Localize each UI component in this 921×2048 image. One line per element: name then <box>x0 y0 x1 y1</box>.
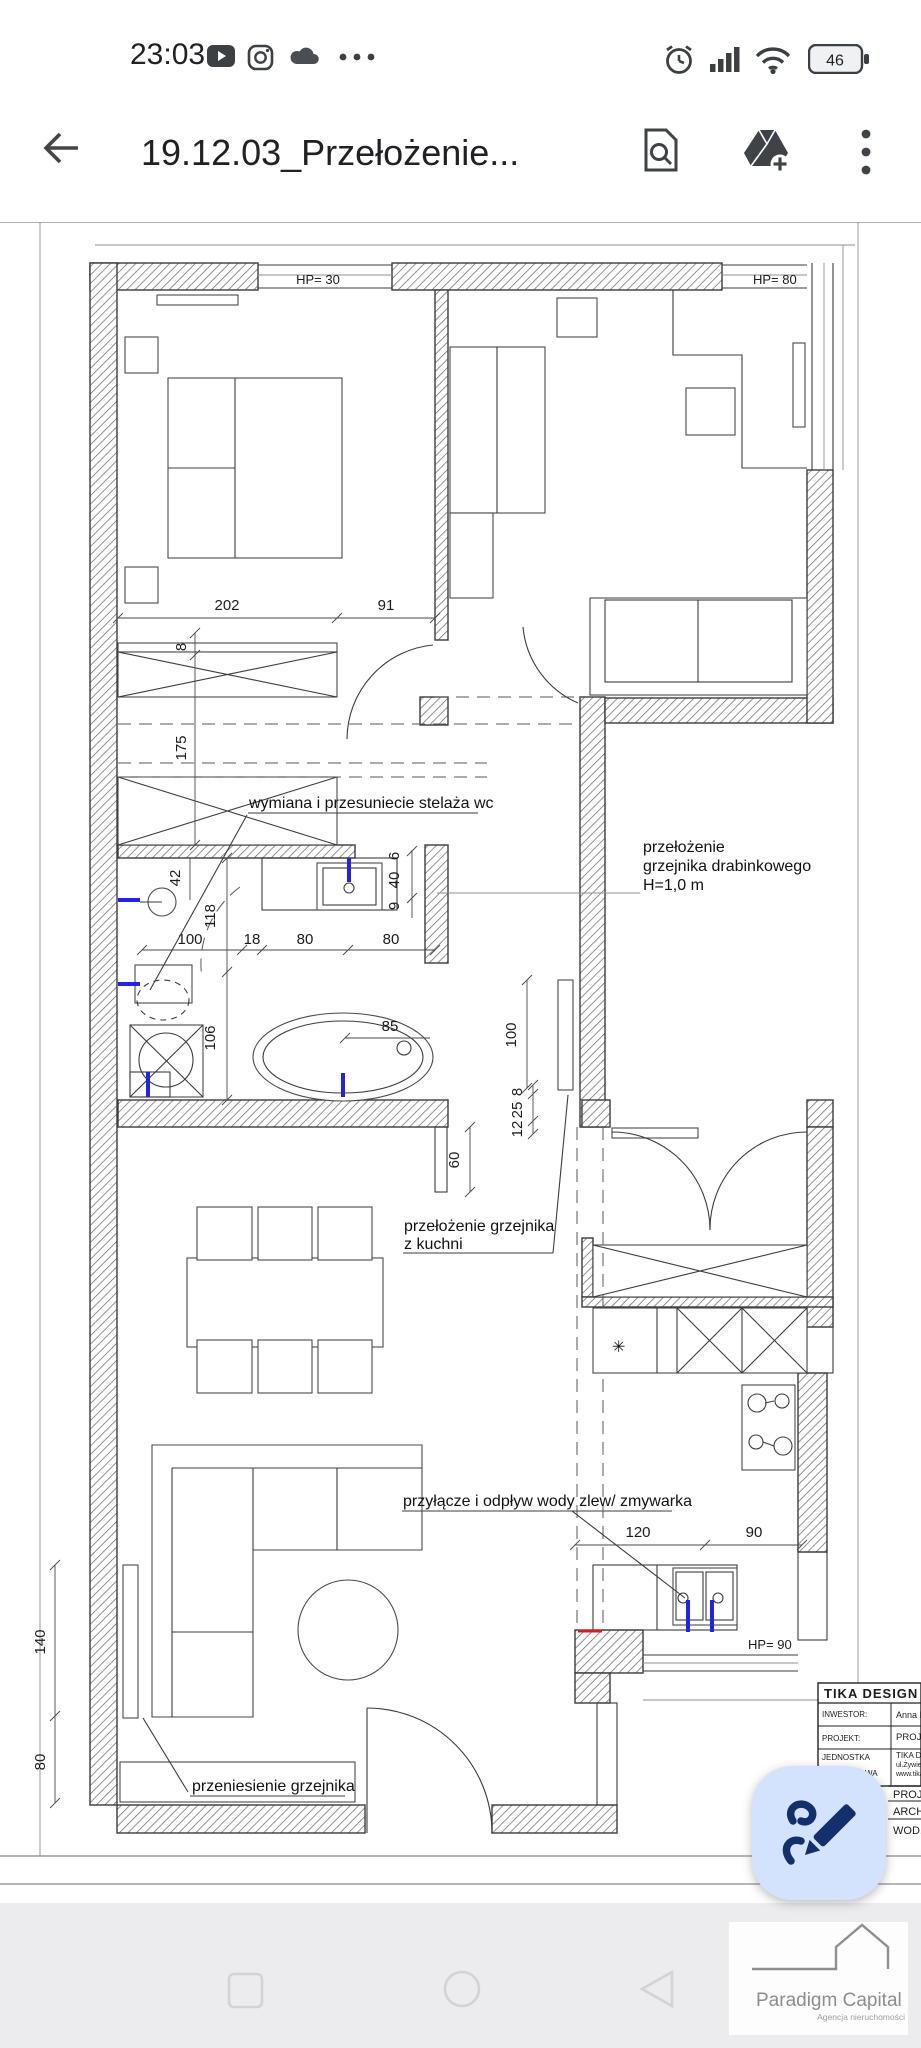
signal-icon <box>708 44 744 74</box>
wifi-icon <box>753 44 793 74</box>
svg-text:grzejnika drabinkowego: grzejnika drabinkowego <box>643 858 811 875</box>
kitchen: ✳ <box>578 1308 807 1632</box>
status-bar: 23:03 46 <box>0 0 921 90</box>
svg-text:H=1,0 m: H=1,0 m <box>643 877 704 894</box>
recent-apps-button[interactable] <box>226 1971 266 2011</box>
svg-text:PROJE: PROJE <box>893 1789 921 1801</box>
page-title: 19.12.03_Przełożenie... <box>141 132 519 174</box>
svg-text:106: 106 <box>202 1025 219 1050</box>
svg-text:8: 8 <box>509 1088 526 1096</box>
hall-wardrobe <box>593 1245 807 1297</box>
window-right <box>812 263 833 470</box>
corner-sofa <box>152 1445 422 1717</box>
window-hp30: HP= 30 <box>258 265 392 288</box>
search-in-document-button[interactable] <box>638 126 684 174</box>
svg-text:85: 85 <box>382 1018 399 1035</box>
kitchen-sink <box>578 1565 737 1632</box>
battery-level-text: 46 <box>826 53 844 70</box>
svg-text:ul.Żywiec: ul.Żywiec <box>896 1760 921 1769</box>
window-hp80: HP= 80 <box>722 265 807 288</box>
svg-text:www.tika: www.tika <box>895 1771 921 1778</box>
floor-plan: .wall{fill:url(#h);stroke:#3c3c3c;stroke… <box>0 0 921 2048</box>
annotation-living-radiator: przeniesienie grzejnika <box>192 1778 355 1795</box>
svg-text:120: 120 <box>625 1524 650 1541</box>
svg-text:80: 80 <box>297 931 314 948</box>
svg-text:18: 18 <box>244 931 261 948</box>
annotation-towel-radiator: przełożenie <box>643 839 725 856</box>
instagram-icon <box>247 44 274 71</box>
svg-text:90: 90 <box>746 1524 763 1541</box>
washing-machine <box>130 1025 203 1097</box>
watermark-subtitle: Agencja nieruchomości <box>817 2012 905 2022</box>
asterisk-symbol: ✳ <box>612 1339 625 1356</box>
watermark-logo: Paradigm Capital Agencja nieruchomości <box>729 1922 908 2035</box>
svg-text:PROJEKT:: PROJEKT: <box>822 1734 860 1743</box>
radiator-corridor <box>558 980 573 1090</box>
svg-text:175: 175 <box>173 735 190 760</box>
window-hp90: HP= 90 <box>643 1637 843 1700</box>
svg-text:INWESTOR:: INWESTOR: <box>822 1710 867 1719</box>
svg-text:z kuchni: z kuchni <box>404 1236 463 1253</box>
svg-text:TIKA DE: TIKA DE <box>896 1751 921 1760</box>
coffee-table <box>298 1580 398 1680</box>
annotation-sink: przyłącze i odpływ wody zlew/ zmywarka <box>403 1493 692 1510</box>
dining-table <box>187 1207 383 1393</box>
more-notifications-icon <box>338 52 378 62</box>
annotation-wc: wymiana i przesuniecie stelaża wc <box>248 795 494 812</box>
svg-text:HP= 90: HP= 90 <box>748 1637 792 1652</box>
bedroom-closet <box>118 643 337 845</box>
scribble-pen-icon <box>769 1783 869 1883</box>
svg-text:100: 100 <box>503 1022 520 1047</box>
youtube-icon <box>206 44 236 68</box>
svg-text:ARCH: ARCH <box>893 1806 921 1818</box>
stove <box>742 1385 795 1470</box>
battery-icon: 46 <box>808 44 872 74</box>
svg-text:40: 40 <box>386 872 403 889</box>
svg-text:TIKA DESIGN: TIKA DESIGN <box>824 1686 918 1701</box>
home-button[interactable] <box>442 1969 482 2009</box>
svg-text:140: 140 <box>32 1629 49 1654</box>
svg-text:Anna Ka: Anna Ka <box>896 1710 921 1720</box>
alarm-icon <box>662 44 696 76</box>
svg-text:PROJEK: PROJEK <box>896 1732 921 1743</box>
svg-text:WOD,: WOD, <box>893 1825 921 1837</box>
svg-text:9: 9 <box>386 902 403 910</box>
watermark-title: Paradigm Capital <box>756 1990 902 2011</box>
edit-annotate-fab[interactable] <box>752 1766 886 1900</box>
annotation-kitchen-radiator: przełożenie grzejnika <box>404 1218 554 1235</box>
svg-text:118: 118 <box>202 904 219 928</box>
svg-text:80: 80 <box>32 1754 49 1771</box>
svg-text:JEDNOSTKA: JEDNOSTKA <box>822 1753 871 1762</box>
back-nav-button[interactable] <box>633 1969 677 2009</box>
back-button[interactable] <box>40 128 84 168</box>
toilet <box>135 965 192 1020</box>
svg-text:91: 91 <box>378 597 395 614</box>
hallway <box>577 1127 807 1630</box>
svg-text:42: 42 <box>167 870 184 887</box>
cloud-icon <box>288 44 322 68</box>
svg-text:202: 202 <box>214 597 239 614</box>
app-bar: 19.12.03_Przełożenie... <box>0 90 921 222</box>
bathroom <box>118 858 433 1101</box>
add-to-drive-button[interactable] <box>742 126 794 174</box>
svg-text:25: 25 <box>509 1102 526 1119</box>
radiator-living <box>123 1565 138 1718</box>
living-room <box>120 1207 492 1833</box>
svg-text:12: 12 <box>509 1121 526 1138</box>
svg-text:60: 60 <box>446 1152 463 1169</box>
svg-text:6: 6 <box>386 852 403 860</box>
clock-text: 23:03 <box>130 38 205 72</box>
svg-text:80: 80 <box>383 931 400 948</box>
overflow-menu-button[interactable] <box>854 126 878 178</box>
svg-text:HP= 30: HP= 30 <box>296 272 340 287</box>
svg-text:8: 8 <box>173 643 190 651</box>
svg-text:HP= 80: HP= 80 <box>753 272 797 287</box>
office-room <box>450 290 807 695</box>
